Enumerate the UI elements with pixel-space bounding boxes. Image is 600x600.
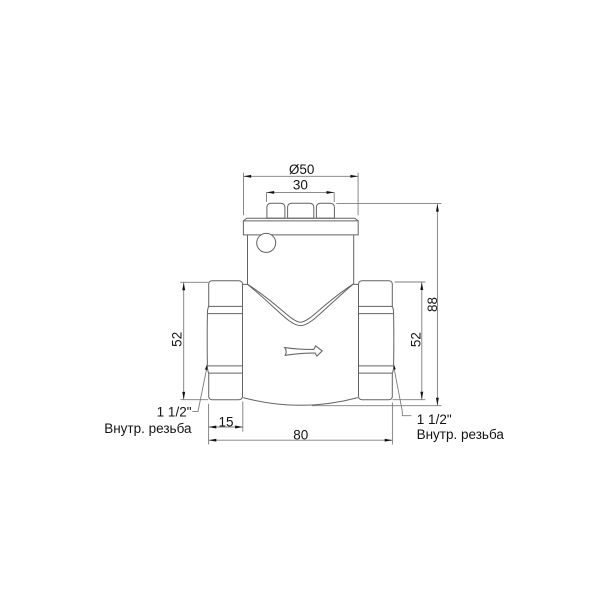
- svg-text:Ø50: Ø50: [289, 162, 315, 177]
- svg-text:Внутр. резьба: Внутр. резьба: [104, 421, 192, 436]
- svg-text:88: 88: [425, 297, 440, 312]
- svg-text:52: 52: [408, 332, 423, 347]
- svg-text:15: 15: [218, 415, 233, 430]
- svg-text:30: 30: [293, 178, 308, 193]
- svg-text:1 1/2": 1 1/2": [417, 412, 452, 427]
- svg-text:80: 80: [293, 427, 308, 442]
- svg-text:1 1/2": 1 1/2": [157, 405, 192, 420]
- svg-text:Внутр. резьба: Внутр. резьба: [417, 427, 505, 442]
- svg-text:52: 52: [169, 332, 184, 347]
